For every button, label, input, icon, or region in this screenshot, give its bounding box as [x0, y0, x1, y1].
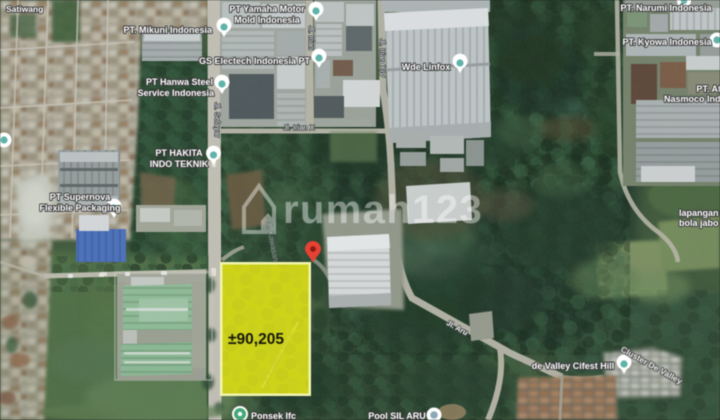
svg-text:GS Electech Indonesia PT: GS Electech Indonesia PT — [199, 56, 311, 66]
svg-text:rumah123: rumah123 — [283, 188, 483, 232]
svg-text:±90,205: ±90,205 — [228, 331, 284, 348]
svg-text:Mold Indonesia: Mold Indonesia — [234, 15, 300, 25]
svg-text:Nasmoco Indust: Nasmoco Indust — [664, 94, 720, 104]
svg-text:Satiwang: Satiwang — [6, 4, 43, 14]
svg-text:Ponsek Ifc: Ponsek Ifc — [251, 411, 296, 420]
svg-text:Jl. Irian: Jl. Irian — [307, 26, 316, 50]
svg-text:PT Hanwa Steel: PT Hanwa Steel — [146, 77, 213, 87]
svg-text:Pool SIL ARU: Pool SIL ARU — [368, 411, 426, 420]
svg-text:Service Indonesia: Service Indonesia — [137, 88, 215, 98]
svg-text:Wde Linfox: Wde Linfox — [402, 62, 451, 72]
svg-text:Jl. Irian XIV: Jl. Irian XIV — [378, 39, 387, 77]
svg-text:Flexible Packaging: Flexible Packaging — [39, 203, 120, 213]
svg-text:INDO TEKNIK: INDO TEKNIK — [150, 159, 209, 169]
svg-text:lapangan: lapangan — [679, 208, 719, 218]
svg-text:PT. Mikuni Indonesia: PT. Mikuni Indonesia — [123, 25, 213, 35]
svg-text:Jl. Irian X: Jl. Irian X — [283, 123, 314, 132]
svg-text:PT. Narumi Indonesia: PT. Narumi Indonesia — [620, 3, 712, 13]
svg-text:PT. Ats: PT. Ats — [696, 84, 720, 94]
svg-text:PT. Kyowa Indonesia: PT. Kyowa Indonesia — [622, 37, 712, 47]
svg-text:Jl. Selayar: Jl. Selayar — [213, 102, 222, 138]
svg-text:bola jabo: bola jabo — [679, 218, 719, 228]
svg-text:PT Yamaha Motor: PT Yamaha Motor — [229, 4, 305, 14]
svg-text:PT HAKITA: PT HAKITA — [155, 148, 203, 158]
svg-text:de Valley Cifest Hill: de Valley Cifest Hill — [532, 361, 615, 371]
svg-text:PT Supernova: PT Supernova — [50, 192, 112, 202]
